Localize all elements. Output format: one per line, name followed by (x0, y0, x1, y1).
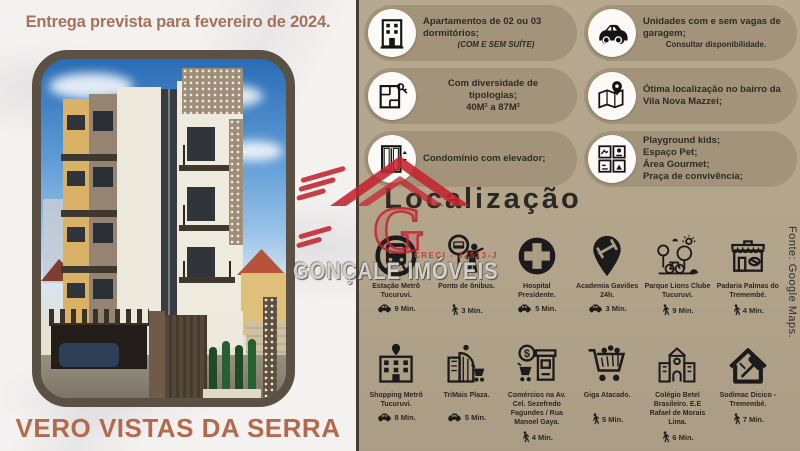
plant (209, 347, 217, 395)
travel-time: 5 Min. (465, 413, 486, 422)
place-name: Parque Lions Clube Tucuruvi. (644, 282, 710, 300)
place-bakery: Padaria Palmas do Tremembé. 4 Min. (713, 229, 783, 338)
building-white-column (117, 87, 161, 324)
source-note: Fonte: Google Maps. (786, 226, 798, 338)
bakery-icon (726, 233, 770, 279)
building-photo-frame (32, 50, 295, 407)
planter-wall (203, 389, 261, 398)
travel-time: 4 Min. (532, 433, 553, 442)
walk-icon (450, 304, 458, 316)
window (93, 223, 113, 243)
breeze-pillar (263, 297, 277, 397)
feature-apartments: Apartamentos de 02 ou 03 dormitórios; (C… (364, 5, 577, 61)
place-metro: Estação Metrô Tucuruvi. 9 Min. (361, 229, 431, 338)
feature-amenities: Playground kids; Espaço Pet; Área Gourme… (584, 131, 797, 187)
feature-line: Praça de convivência; (643, 171, 789, 183)
places-grid: Estação Metrô Tucuruvi. 9 Min. Ponto de … (361, 229, 783, 447)
walk-icon (661, 304, 669, 316)
mall-icon (374, 342, 418, 388)
features-grid: Apartamentos de 02 ou 03 dormitórios; (C… (364, 5, 797, 187)
entry-gate (165, 315, 207, 398)
glass-mullion (168, 89, 170, 324)
building-render (41, 59, 286, 398)
place-name: Ponto de ônibus. (433, 282, 499, 300)
plant (248, 339, 256, 395)
travel-time: 7 Min. (743, 415, 764, 424)
travel-time: 8 Min. (395, 413, 416, 422)
pergola (49, 309, 149, 326)
floorplan-key-icon (375, 79, 409, 113)
place-hospital: Hospital Presidente. 5 Min. (502, 229, 572, 338)
localizacao-title: Localização (367, 183, 599, 216)
car-icon (447, 413, 462, 422)
walk-icon (732, 413, 740, 425)
bus-stop-icon (444, 233, 488, 279)
window (93, 111, 113, 131)
gate-column (149, 311, 165, 398)
commerce-icon (515, 342, 559, 388)
place-name: Estação Metrô Tucuruvi. (363, 282, 429, 300)
balcony-rail (183, 145, 231, 167)
place-bus-stop: Ponto de ônibus. 3 Min. (431, 229, 501, 338)
place-commerce: Comércios na Av. Cel. Sezefredo Fagundes… (502, 338, 572, 447)
window (93, 167, 113, 187)
walk-icon (732, 304, 740, 316)
home-repair-icon (726, 342, 770, 388)
breeze-block-strip (229, 119, 243, 245)
place-name: Academia Gaviões 24h. (574, 282, 640, 300)
travel-time: 5 Min. (602, 415, 623, 424)
feature-elevator: Condomínio com elevador; (364, 131, 577, 187)
walk-icon (521, 431, 529, 443)
place-sodimac: Sodimac Dicico - Tremembé. 7 Min. (713, 338, 783, 447)
place-park: Parque Lions Clube Tucuruvi. 9 Min. (642, 229, 712, 338)
place-giga-atacado: Giga Atacado. 5 Min. (572, 338, 642, 447)
right-panel: Apartamentos de 02 ou 03 dormitórios; (C… (356, 0, 800, 451)
balcony-rail (183, 205, 231, 227)
plant (222, 341, 230, 395)
plaza-icon (444, 342, 488, 388)
place-name: Comércios na Av. Cel. Sezefredo Fagundes… (504, 391, 570, 427)
place-name: Shopping Metrô Tucuruvi. (363, 391, 429, 409)
window (67, 283, 85, 298)
window (93, 279, 113, 299)
walk-icon (661, 431, 669, 443)
park-icon (655, 233, 699, 279)
building-icon (375, 16, 409, 50)
window (67, 115, 85, 130)
feature-location: Ótima localização no bairro da Vila Nova… (584, 68, 797, 124)
flyer-canvas: Entrega prevista para fevereiro de 2024. (0, 0, 800, 451)
car-icon (595, 16, 629, 50)
hospital-icon (515, 233, 559, 279)
place-gym: Academia Gaviões 24h. 3 Min. (572, 229, 642, 338)
travel-time: 5 Min. (535, 304, 556, 313)
elevator-icon (375, 142, 409, 176)
place-name: Padaria Palmas do Tremembé. (715, 282, 781, 300)
car-icon (517, 304, 532, 313)
travel-time: 3 Min. (606, 304, 627, 313)
balcony-slab (179, 225, 235, 231)
feature-text: Com diversidade de tipologias; (423, 78, 563, 102)
feature-subtext: 40M² a 87M² (423, 102, 563, 114)
balcony-slab (179, 277, 235, 283)
feature-text: Apartamentos de 02 ou 03 dormitórios; (423, 16, 569, 40)
feature-line: Playground kids; (643, 135, 789, 147)
plant (235, 345, 243, 395)
place-name: Giga Atacado. (574, 391, 640, 409)
feature-garage: Unidades com e sem vagas de garagem; Con… (584, 5, 797, 61)
feature-subtext: (COM E SEM SUÍTE) (423, 40, 569, 50)
place-name: TriMais Plaza. (433, 391, 499, 409)
place-shopping: Shopping Metrô Tucuruvi. 8 Min. (361, 338, 431, 447)
place-name: Hospital Presidente. (504, 282, 570, 300)
feature-text: Unidades com e sem vagas de garagem; (643, 16, 789, 40)
cart-icon (585, 342, 629, 388)
travel-time: 9 Min. (395, 304, 416, 313)
gym-pin-icon (585, 233, 629, 279)
amenities-grid-icon (595, 142, 629, 176)
travel-time: 6 Min. (672, 433, 693, 442)
car-icon (377, 413, 392, 422)
car-in-garage (59, 343, 119, 367)
left-panel: Entrega prevista para fevereiro de 2024. (0, 0, 356, 451)
car-icon (377, 304, 392, 313)
window (67, 227, 85, 242)
car-icon (588, 304, 603, 313)
feature-line: Espaço Pet; (643, 147, 789, 159)
feature-typologies: Com diversidade de tipologias; 40M² a 87… (364, 68, 577, 124)
project-name: VERO VISTAS DA SERRA (0, 413, 356, 444)
feature-text: Ótima localização no bairro da Vila Nova… (643, 84, 789, 108)
balcony-slab (179, 165, 235, 171)
delivery-banner: Entrega prevista para fevereiro de 2024. (0, 13, 356, 32)
walk-icon (591, 413, 599, 425)
travel-time: 3 Min. (461, 306, 482, 315)
feature-text: Condomínio com elevador; (423, 153, 569, 165)
school-icon (655, 342, 699, 388)
breeze-block-panel (182, 68, 243, 114)
place-name: Sodimac Dicico - Tremembé. (715, 391, 781, 409)
metro-icon (374, 233, 418, 279)
place-school: Colégio Betel Brasileiro. E.E Rafael de … (642, 338, 712, 447)
map-pin-icon (595, 79, 629, 113)
travel-time: 9 Min. (672, 306, 693, 315)
neighbor-roof-right (237, 249, 286, 275)
place-trimais: TriMais Plaza. 5 Min. (431, 338, 501, 447)
place-name: Colégio Betel Brasileiro. E.E Rafael de … (644, 391, 710, 427)
travel-time: 4 Min. (743, 306, 764, 315)
feature-line: Área Gourmet; (643, 159, 789, 171)
feature-subtext: Consultar disponibilidade. (643, 40, 789, 50)
window (67, 171, 85, 186)
